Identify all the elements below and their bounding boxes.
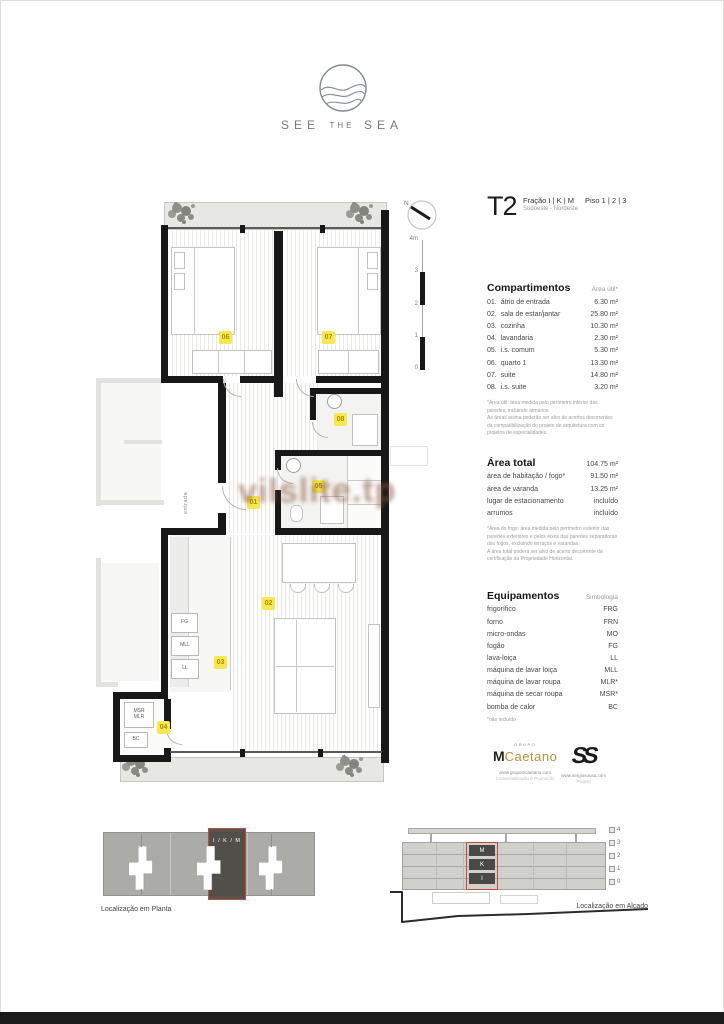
room-number: 08 (337, 416, 345, 423)
row-name: arrumos (487, 510, 513, 517)
neighbor-balcony (390, 446, 428, 466)
wall (275, 450, 281, 470)
row-value: 6.30 m² (594, 299, 618, 306)
floor-line (403, 866, 605, 867)
scale-label: 1 (398, 333, 418, 339)
site-division-line (170, 833, 171, 895)
row-name: área de habitação / fogo* (487, 473, 565, 480)
scale-label: 4m (398, 236, 418, 242)
row-name: i.s. comum (501, 347, 535, 354)
area-fogo-footnote: *Área do fogo: área medida pelo perímetr… (487, 526, 618, 564)
scale-label: 2 (398, 301, 418, 307)
location-elevation-caption: Localização em Alçado (520, 903, 648, 910)
table-row: 01.átrio de entrada6.30 m² (487, 299, 618, 306)
neighbor-wall (96, 500, 164, 505)
floor-line (403, 854, 605, 855)
row-value: 5.30 m² (594, 347, 618, 354)
grupo-label: GRUPO (493, 742, 557, 747)
mcaetano-url: www.grupomcaetano.com (493, 770, 557, 775)
table-row: 06.quarto 113.30 m² (487, 360, 618, 367)
wall (316, 376, 381, 383)
room-badge-08: 08 (334, 413, 347, 426)
mcaetano-caetano: Caetano (505, 749, 558, 764)
sofa-line (276, 666, 334, 667)
row-num: 07. (487, 372, 497, 379)
ss-mark: SS (570, 742, 597, 769)
site-division-line (247, 833, 248, 895)
row-symbol: FRN (604, 619, 618, 626)
neighbor-wall (96, 378, 101, 506)
brand-wordmark: SEE THE SEA (262, 116, 422, 134)
orientation-label: Sudoeste - Nordeste (523, 206, 578, 212)
unit-shape-icon (258, 846, 286, 890)
unit-stem-line (271, 834, 272, 847)
scale-label: 3 (398, 268, 418, 274)
wardrobe-line (218, 351, 219, 373)
area-total-table: área de habitação / fogo*91.50 m² área d… (487, 473, 618, 517)
row-value: 91.50 m² (590, 473, 618, 480)
unit-letter: M (480, 848, 485, 854)
facade-line (463, 843, 464, 889)
row-num: 08. (487, 384, 497, 391)
area-total-value: 104.75 m² (586, 461, 618, 468)
table-row: máquina de lavar roupaMLR* (487, 679, 618, 686)
equipment-header: Equipamentos Simbologia (487, 590, 618, 602)
room-badge-03: 03 (214, 656, 227, 669)
unit-letter: I (481, 876, 483, 882)
row-num: 03. (487, 323, 497, 330)
pillow (367, 252, 378, 269)
north-arrow-icon: N (400, 196, 442, 236)
table-row: máquina de lavar loiçaMLL (487, 667, 618, 674)
floor-number: 2 (617, 853, 620, 859)
room-badge-02: 02 (262, 597, 275, 610)
sink-icon (327, 394, 342, 409)
info-column: Compartimentos Área útil* 01.átrio de en… (487, 282, 618, 784)
row-num: 01. (487, 299, 497, 306)
row-symbol: FG (608, 643, 618, 650)
row-symbol: LL (610, 655, 618, 662)
pillow (367, 273, 378, 290)
mcaetano-logo: GRUPO MCaetano www.grupomcaetano.com Com… (493, 742, 557, 781)
shower (352, 414, 378, 446)
wall (161, 376, 223, 383)
appliance-code: BC (133, 737, 140, 743)
window-mullion (240, 225, 245, 233)
room-badge-07: 07 (322, 331, 335, 344)
row-name: forno (487, 619, 503, 626)
wall (113, 755, 171, 762)
plant-icon (340, 756, 350, 766)
row-name: i.s. suite (501, 384, 527, 391)
row-value: 3.20 m² (594, 384, 618, 391)
row-symbol: BC (608, 704, 618, 711)
wall (161, 225, 168, 383)
floor-line (403, 878, 605, 879)
wall (113, 692, 168, 699)
unit-letter: K (480, 862, 484, 868)
wall (275, 450, 382, 456)
unit-stem-line (141, 889, 142, 896)
blanket-line (358, 248, 359, 334)
appliance-code: FG (181, 620, 188, 626)
row-symbol: MSR* (600, 691, 618, 698)
row-name: máquina de secar roupa (487, 691, 563, 698)
appliance-code: MLR (134, 715, 145, 721)
row-name: lava-loiça (487, 655, 517, 662)
row-value: 14.80 m² (590, 372, 618, 379)
pillow (174, 252, 185, 269)
room-number: 02 (265, 600, 273, 607)
table-row: 07.suite14.80 m² (487, 372, 618, 379)
room-badge-06: 06 (219, 331, 232, 344)
area-util-col-label: Área útil* (592, 286, 618, 293)
unit-cell-k: K (469, 859, 495, 870)
floor-label: 4 (609, 827, 620, 833)
window-mullion (240, 749, 245, 757)
mcaetano-m: M (493, 748, 505, 764)
unit-shape-icon (128, 846, 156, 890)
brochure-page: SEE THE SEA (0, 0, 724, 1024)
brand-part: SEE (281, 118, 320, 132)
row-name: lugar de estacionamento (487, 498, 564, 505)
appliance-mll-label: MLL (171, 636, 199, 656)
fraction-label: Fração I | K | M (523, 196, 574, 205)
window-line (170, 751, 382, 753)
row-symbol: MO (607, 631, 618, 638)
table-row: fornoFRN (487, 619, 618, 626)
room-number: 04 (160, 724, 168, 731)
window-line (168, 227, 381, 229)
appliance-bc-label: BC (124, 732, 148, 748)
ss-url: www.sergiosousa.com (561, 773, 606, 778)
partner-logos: GRUPO MCaetano www.grupomcaetano.com Com… (487, 742, 618, 784)
wall (218, 383, 226, 483)
unit-stem-line (271, 889, 272, 896)
dining-table (282, 543, 356, 583)
table-row: área de varanda13.25 m² (487, 486, 618, 493)
table-row: micro-ondasMO (487, 631, 618, 638)
table-row: frigoríficoFRG (487, 606, 618, 613)
row-name: cozinha (501, 323, 525, 330)
room-badge-04: 04 (157, 721, 170, 734)
plant-icon (350, 203, 360, 213)
table-row: 05.i.s. comum5.30 m² (487, 347, 618, 354)
row-symbol: MLR* (600, 679, 618, 686)
scale-segment (420, 272, 425, 305)
row-name: fogão (487, 643, 505, 650)
appliance-ll-label: LL (171, 659, 199, 679)
equipment-footnote: *não incluído (487, 717, 618, 725)
wardrobe-line (348, 351, 349, 373)
neighbor-wall (96, 682, 118, 687)
area-total-title: Área total (487, 457, 535, 469)
row-name: átrio de entrada (501, 299, 550, 306)
ss-role: Projeto (561, 779, 606, 784)
table-row: máquina de secar roupaMSR* (487, 691, 618, 698)
wall (310, 388, 382, 394)
area-total-header: Área total 104.75 m² (487, 457, 618, 469)
brand-part: THE (330, 121, 355, 130)
mcaetano-role: Comercialização e Promoção (493, 776, 557, 781)
table-row: fogãoFG (487, 643, 618, 650)
table-row: 08.i.s. suite3.20 m² (487, 384, 618, 391)
wall (275, 528, 382, 535)
compartments-header: Compartimentos Área útil* (487, 282, 618, 294)
ss-logo: SS www.sergiosousa.com Projeto (561, 742, 616, 784)
wall (164, 748, 171, 758)
appliance-fg-label: FG (171, 613, 198, 633)
room-number: 06 (222, 334, 230, 341)
unit-cell-m: M (469, 845, 495, 856)
wardrobe (192, 350, 272, 374)
unit-stem-line (141, 834, 142, 847)
floor-label: 2 (609, 853, 620, 859)
row-symbol: FRG (603, 606, 618, 613)
location-plan-caption: Localização em Planta (101, 906, 171, 913)
row-value: 10.30 m² (590, 323, 618, 330)
floor-number: 1 (617, 866, 620, 872)
area-util-footnote: *Área útil: área medida pelo perímetro i… (487, 400, 618, 438)
floor-number: 4 (617, 827, 620, 833)
row-value: incluído (594, 498, 618, 505)
wall (161, 528, 168, 698)
table-row: 03.cozinha10.30 m² (487, 323, 618, 330)
wall (113, 692, 120, 762)
neighbor-wall (96, 378, 164, 383)
row-name: área de varanda (487, 486, 538, 493)
table-row: bomba de calorBC (487, 704, 618, 711)
wall (274, 231, 283, 397)
room-number: 07 (325, 334, 333, 341)
appliance-msr-mlr-label: MSR MLR (124, 702, 154, 728)
window-mullion (318, 749, 323, 757)
wall (161, 528, 226, 535)
equipment-table: frigoríficoFRG fornoFRN micro-ondasMO fo… (487, 606, 618, 710)
row-name: máquina de lavar loiça (487, 667, 557, 674)
room-number: 03 (217, 659, 225, 666)
unit-label: I / K / M (208, 838, 246, 844)
row-name: suite (501, 372, 516, 379)
row-name: quarto 1 (501, 360, 527, 367)
floor-label: 3 (609, 840, 620, 846)
floor-label: 1 (609, 866, 620, 872)
facade-line (533, 843, 534, 889)
scale-label: 0 (398, 365, 418, 371)
roof-slab (408, 828, 596, 834)
neighbor-wall (124, 440, 162, 444)
facade-line (566, 843, 567, 889)
table-row: 02.sala de estar/jantar25.80 m² (487, 311, 618, 318)
floor-number: 3 (617, 840, 620, 846)
equipment-title: Equipamentos (487, 590, 559, 602)
compartments-table: 01.átrio de entrada6.30 m² 02.sala de es… (487, 299, 618, 391)
row-value: 2.30 m² (594, 335, 618, 342)
row-value: 13.30 m² (590, 360, 618, 367)
table-row: arrumosincluído (487, 510, 618, 517)
watermark: vilslite.tp (238, 471, 397, 511)
blanket-line (194, 248, 195, 334)
table-row: lugar de estacionamentoincluído (487, 498, 618, 505)
wardrobe-line (244, 351, 245, 373)
row-num: 02. (487, 311, 497, 318)
wall (240, 376, 274, 383)
row-name: lavandaria (501, 335, 533, 342)
table-row: lava-loiçaLL (487, 655, 618, 662)
row-num: 04. (487, 335, 497, 342)
row-name: frigorífico (487, 606, 516, 613)
kitchen-edge-line (230, 537, 231, 690)
svg-text:N: N (404, 200, 409, 207)
apartment-type: T2 (487, 191, 517, 222)
scale-segment (420, 337, 425, 370)
floors-label: Piso 1 | 2 | 3 (585, 196, 626, 205)
pillow (174, 273, 185, 290)
row-value: incluído (594, 510, 618, 517)
neighbor-room (101, 563, 159, 681)
row-name: micro-ondas (487, 631, 526, 638)
row-name: bomba de calor (487, 704, 535, 711)
row-value: 25.80 m² (590, 311, 618, 318)
neighbor-wall (96, 558, 101, 686)
table-row: área de habitação / fogo*91.50 m² (487, 473, 618, 480)
see-the-sea-logo-icon (318, 63, 368, 113)
simbologia-col-label: Simbologia (586, 594, 618, 601)
appliance-code: LL (182, 666, 188, 672)
unit-shape-icon (196, 846, 224, 890)
row-symbol: MLL (604, 667, 618, 674)
mcaetano-wordmark: MCaetano (493, 748, 557, 766)
brand-part: SEA (364, 118, 403, 132)
entrance-label: entrada (183, 484, 189, 514)
compartments-title: Compartimentos (487, 282, 570, 294)
appliance-code: MLL (180, 643, 190, 649)
row-num: 05. (487, 347, 497, 354)
row-value: 13.25 m² (590, 486, 618, 493)
row-name: sala de estar/jantar (501, 311, 561, 318)
table-row: 04.lavandaria2.30 m² (487, 335, 618, 342)
plant-icon (172, 203, 182, 213)
tv-console (368, 624, 380, 708)
unit-cell-i: I (469, 873, 495, 884)
window-mullion (320, 225, 325, 233)
facade-line (436, 843, 437, 889)
bottom-black-bar (0, 1012, 724, 1024)
row-name: máquina de lavar roupa (487, 679, 561, 686)
row-num: 06. (487, 360, 497, 367)
